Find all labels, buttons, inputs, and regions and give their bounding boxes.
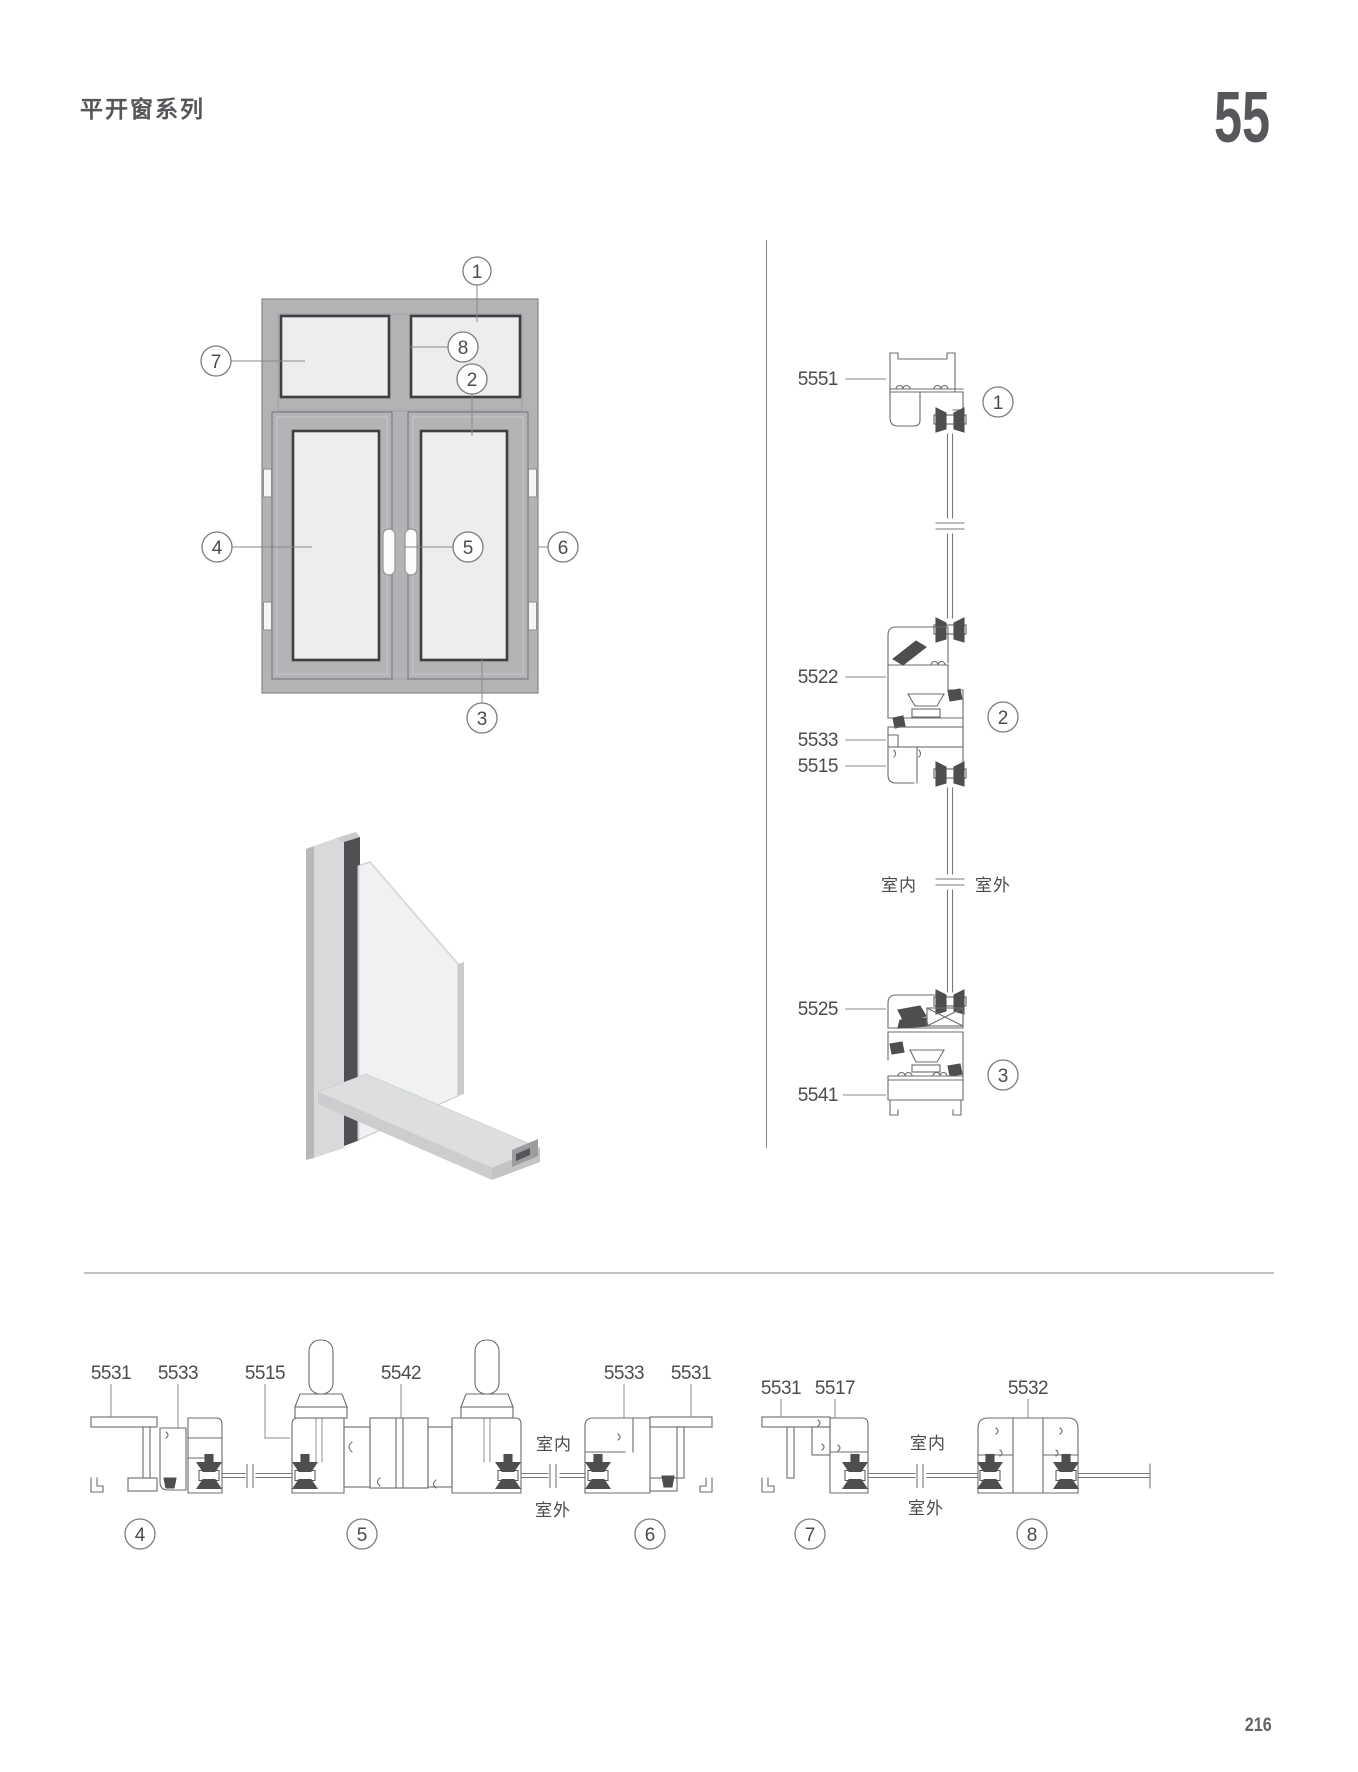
callout-8: 8 — [448, 332, 478, 362]
section-callout-4: 4 — [125, 1519, 155, 1549]
profile-5525-assembly — [888, 990, 966, 1115]
part-label-5517: 5517 — [815, 1378, 855, 1399]
catalog-page: 平开窗系列 55 216 — [0, 0, 1358, 1772]
svg-text:7: 7 — [211, 352, 222, 373]
section-callout-3: 3 — [988, 1060, 1018, 1090]
svg-text:4: 4 — [212, 538, 223, 559]
part-label-5515-b: 5515 — [245, 1363, 285, 1384]
svg-text:1: 1 — [472, 262, 483, 283]
vertical-section — [888, 353, 966, 1115]
profile-5551 — [890, 353, 966, 432]
section-callout-7: 7 — [795, 1519, 825, 1549]
hsection-8 — [978, 1418, 1078, 1493]
glass-upper — [936, 434, 964, 618]
svg-text:1: 1 — [993, 393, 1004, 414]
outdoor-label-left-group: 室外 — [535, 1501, 571, 1520]
callout-4: 4 — [202, 532, 232, 562]
part-label-5541: 5541 — [798, 1085, 838, 1106]
window-elevation — [262, 299, 538, 693]
svg-text:3: 3 — [998, 1066, 1009, 1087]
part-label-5515: 5515 — [798, 756, 838, 777]
callout-6: 6 — [548, 532, 578, 562]
indoor-label-vsection: 室内 — [881, 876, 917, 895]
isometric-profile-render — [306, 832, 540, 1180]
part-label-5531-a: 5531 — [91, 1363, 131, 1384]
part-label-5533-b: 5533 — [604, 1363, 644, 1384]
svg-text:5: 5 — [463, 538, 474, 559]
casement-sash-left — [272, 412, 392, 679]
callout-5: 5 — [453, 532, 483, 562]
window-handle-left — [383, 529, 395, 575]
part-label-5531-c: 5531 — [761, 1378, 801, 1399]
outdoor-label-right-group: 室外 — [908, 1499, 944, 1518]
section-callout-8: 8 — [1017, 1519, 1047, 1549]
part-label-5532: 5532 — [1008, 1378, 1048, 1399]
callout-7: 7 — [201, 346, 231, 376]
hsection-6 — [585, 1417, 712, 1493]
hsection-7 — [762, 1417, 868, 1493]
part-label-5531-b: 5531 — [671, 1363, 711, 1384]
part-label-5533: 5533 — [798, 730, 838, 751]
part-label-5542: 5542 — [381, 1363, 421, 1384]
hsection-right-labels: 5531 5517 5532 室内 室外 7 8 — [761, 1378, 1048, 1549]
svg-text:8: 8 — [1027, 1525, 1038, 1546]
profile-5541 — [888, 1073, 963, 1116]
section-callout-1: 1 — [983, 387, 1013, 417]
hsection-left-labels: 5531 5533 5515 5542 5533 5531 室内 室外 4 5 … — [91, 1363, 711, 1549]
window-handle-right — [405, 529, 417, 575]
svg-text:6: 6 — [645, 1525, 656, 1546]
profile-5542 — [370, 1418, 428, 1488]
technical-drawing: 1 7 8 2 4 5 6 — [0, 0, 1358, 1772]
hsection-4 — [91, 1417, 222, 1493]
profile-5533-bead — [888, 727, 963, 747]
part-label-5522: 5522 — [798, 667, 838, 688]
svg-text:3: 3 — [477, 709, 488, 730]
part-label-5551: 5551 — [798, 369, 838, 390]
callout-3: 3 — [467, 703, 497, 733]
section-callout-2: 2 — [988, 702, 1018, 732]
glass-lower — [936, 788, 964, 992]
indoor-label-left-group: 室内 — [536, 1435, 572, 1454]
svg-text:4: 4 — [135, 1525, 146, 1546]
svg-text:2: 2 — [467, 370, 478, 391]
callout-2: 2 — [457, 364, 487, 394]
outdoor-label-vsection: 室外 — [975, 876, 1011, 895]
profile-5522-assembly — [888, 618, 966, 786]
svg-text:6: 6 — [558, 538, 569, 559]
svg-text:7: 7 — [805, 1525, 816, 1546]
section-callout-6: 6 — [635, 1519, 665, 1549]
section-callout-5: 5 — [347, 1519, 377, 1549]
indoor-label-right-group: 室内 — [910, 1434, 946, 1453]
part-label-5533-a: 5533 — [158, 1363, 198, 1384]
svg-text:8: 8 — [458, 338, 469, 359]
svg-text:5: 5 — [357, 1525, 368, 1546]
callout-1: 1 — [463, 257, 491, 285]
part-label-5525: 5525 — [798, 999, 838, 1020]
horizontal-section-right-group — [762, 1417, 1150, 1493]
fixed-pane-left — [281, 316, 389, 397]
svg-text:2: 2 — [998, 708, 1009, 729]
